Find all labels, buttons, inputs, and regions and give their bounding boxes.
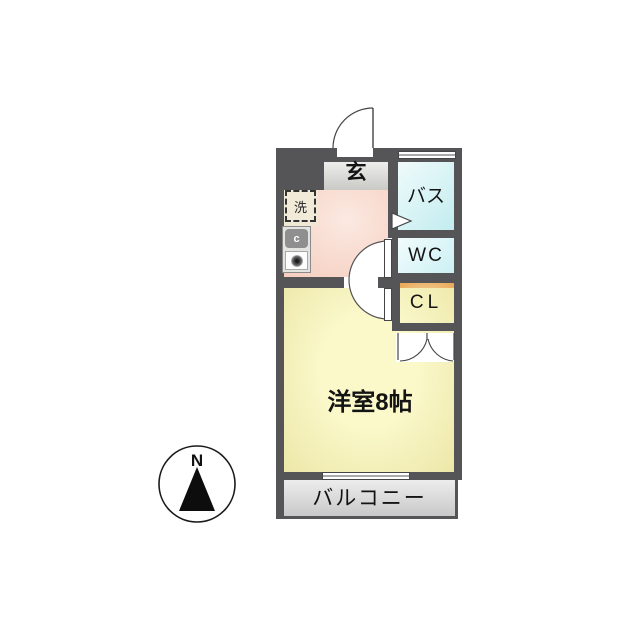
closet-label: CL — [398, 290, 454, 316]
hall-door-leaf — [384, 288, 392, 321]
wc-door-leaf — [384, 239, 392, 278]
closet-door-area — [396, 333, 454, 362]
genkan-label: 玄 — [324, 158, 388, 188]
compass: N — [159, 446, 235, 522]
stove-burner-icon: c — [285, 229, 308, 248]
sink-drain-icon — [291, 255, 303, 267]
entry-door-swing-arc — [333, 108, 373, 148]
bath-door-icon — [392, 213, 411, 229]
washer-label: 洗 — [294, 197, 307, 216]
wc-label: WC — [398, 242, 454, 270]
main-room-label: 洋室8帖 — [280, 389, 460, 417]
kitchen-sink-icon — [285, 251, 308, 270]
burner-glyph: c — [293, 233, 299, 245]
floor-plan-canvas: N 洗 c 玄 バス WC CL 洋室8帖 バルコニー — [0, 0, 640, 640]
bath-label: バス — [398, 183, 454, 211]
linework-layer: N — [0, 0, 640, 640]
balcony-label: バルコニー — [284, 487, 455, 511]
washer-box: 洗 — [285, 190, 316, 222]
